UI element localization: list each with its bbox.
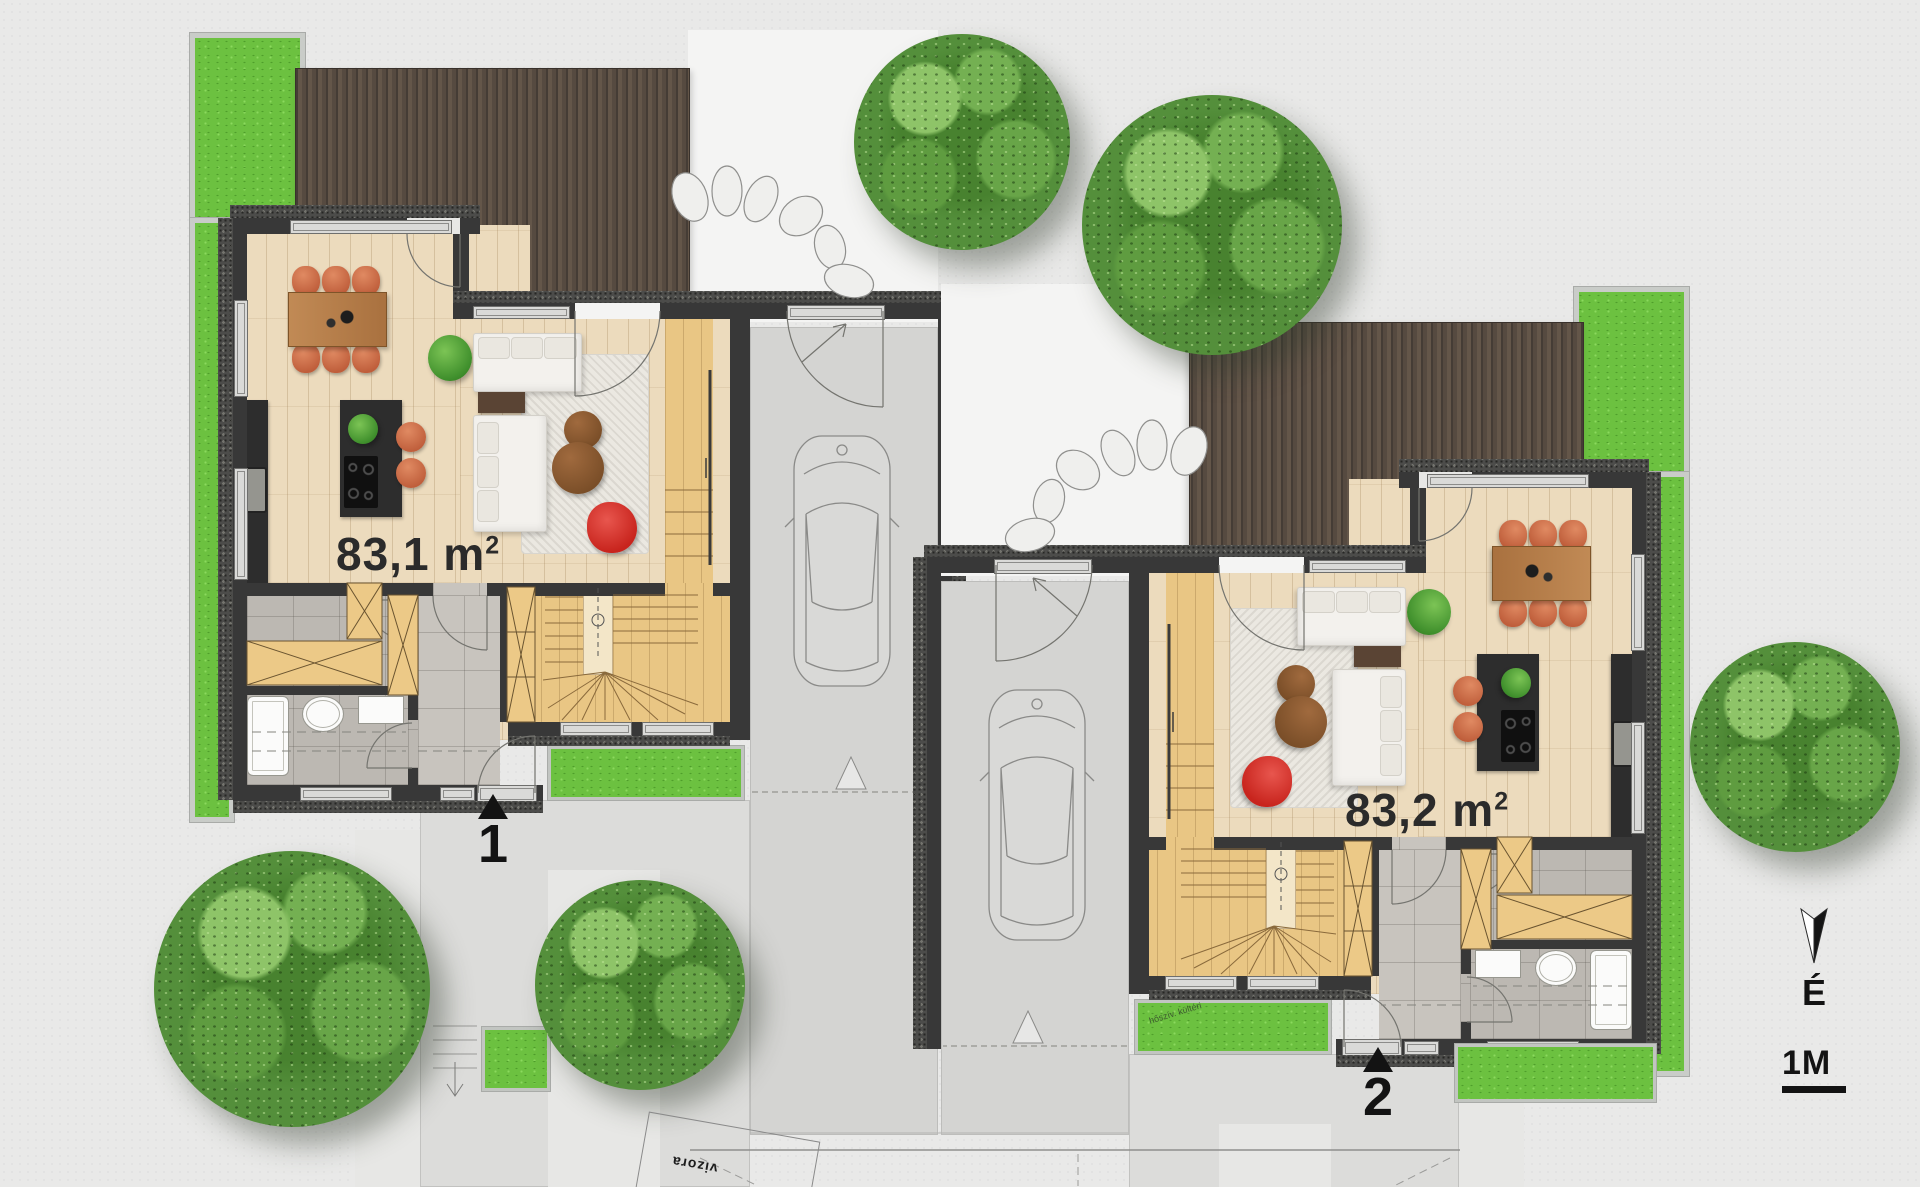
entrance-marker-1: 1	[462, 794, 524, 870]
area-sup: 2	[1494, 788, 1509, 816]
area-label-unit-2: 83,2 m2	[1345, 783, 1509, 837]
area-value: 83,1 m	[336, 528, 485, 580]
scale-label: 1M	[1782, 1044, 1852, 1083]
area-label-unit-1: 83,1 m2	[336, 527, 500, 581]
area-value: 83,2 m	[1345, 784, 1494, 836]
entrance-number: 1	[462, 819, 524, 870]
north-needle-icon	[1797, 903, 1831, 965]
north-label: É	[1797, 972, 1831, 1014]
scale-bar-line	[1782, 1086, 1846, 1093]
entrance-number: 2	[1347, 1072, 1409, 1123]
site-plan: 83,1 m2 83,2 m2 1 2 É 1M vizora hőszív. …	[0, 0, 1920, 1187]
scale-bar: 1M	[1782, 1044, 1852, 1093]
watermark-label: vizora	[670, 1153, 719, 1177]
parking-linework-svg	[0, 0, 1920, 1187]
area-sup: 2	[485, 532, 500, 560]
entrance-marker-2: 2	[1347, 1047, 1409, 1123]
compass: É	[1797, 903, 1831, 1014]
